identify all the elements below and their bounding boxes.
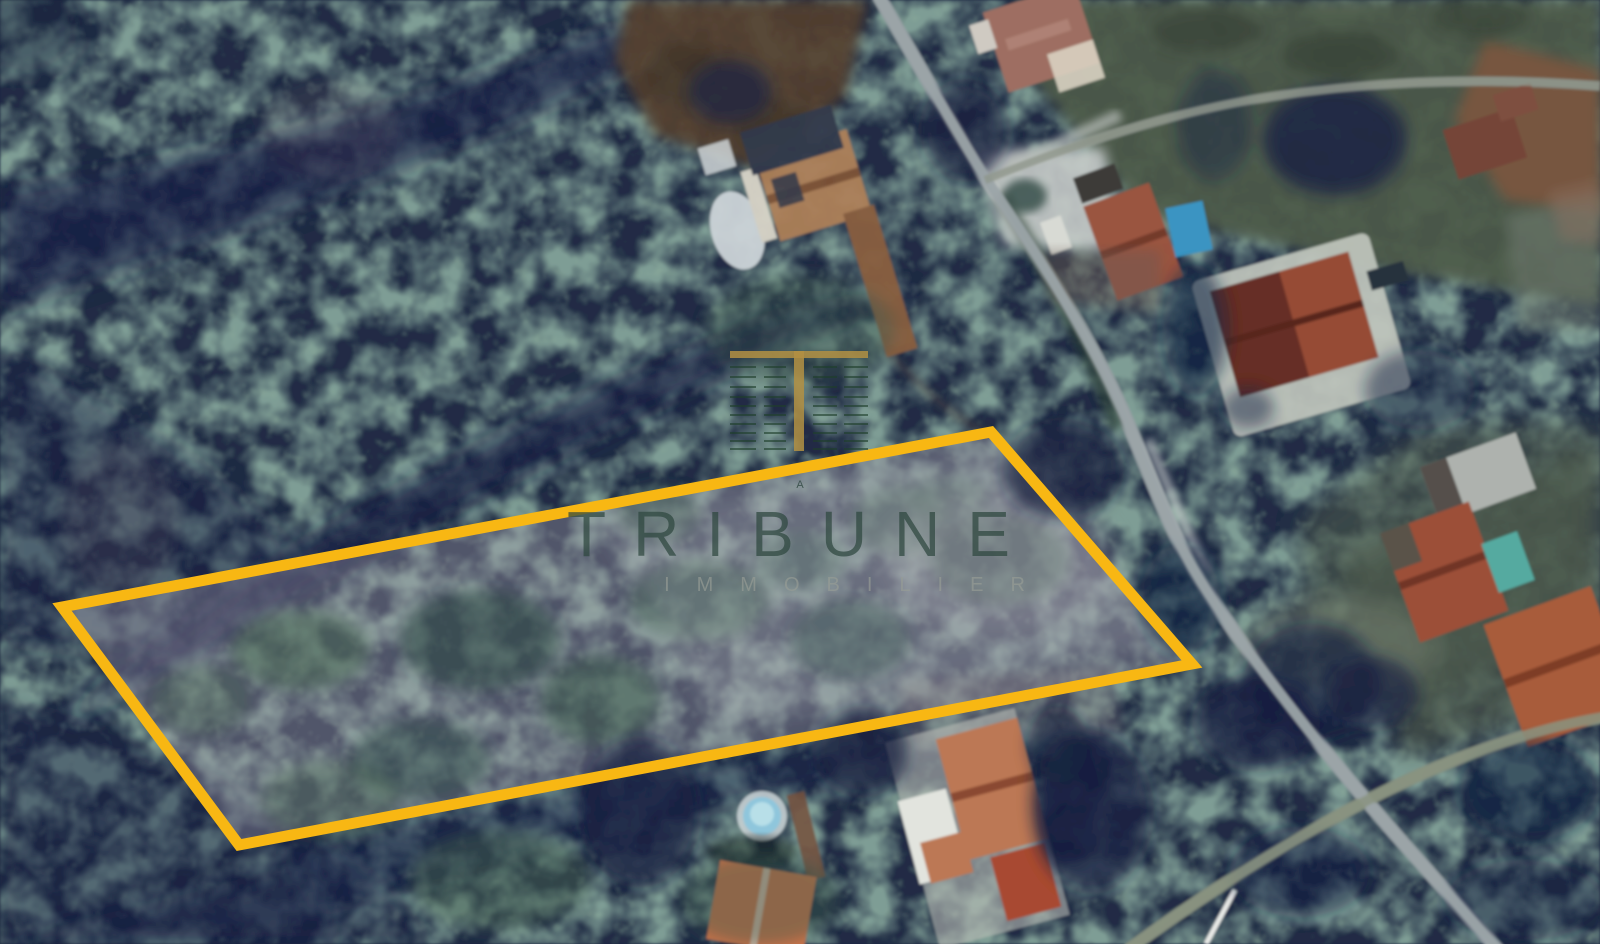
svg-text:IMMOBILIER: IMMOBILIER [664, 574, 1052, 596]
svg-text:TRIBUNE: TRIBUNE [567, 498, 1037, 570]
svg-text:A: A [796, 479, 804, 491]
